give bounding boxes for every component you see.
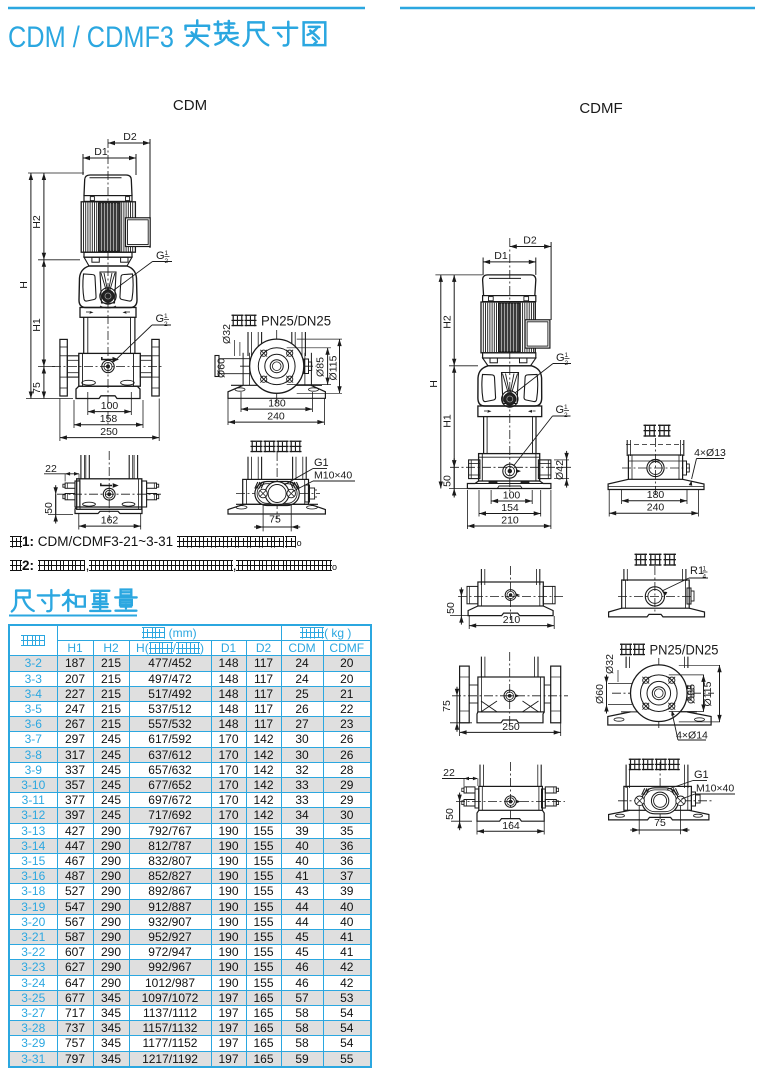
svg-text:4: 4 [703,574,707,581]
svg-text:2: 2 [564,412,568,419]
svg-text:210: 210 [501,515,519,527]
svg-text:Ø115: Ø115 [702,681,714,706]
svg-text:PN25/DN25: PN25/DN25 [650,642,719,658]
svg-text:CDMF: CDMF [579,100,622,117]
svg-text:H2: H2 [31,215,43,229]
svg-text:75: 75 [441,700,453,712]
svg-text:G: G [556,352,565,364]
svg-text:M10×40: M10×40 [696,783,734,795]
svg-text:22: 22 [443,767,455,779]
svg-text:50: 50 [445,602,457,614]
svg-text:250: 250 [502,721,520,733]
svg-text:Ø85: Ø85 [315,357,327,377]
svg-text:G: G [156,313,165,325]
svg-text:75: 75 [654,817,666,829]
svg-text:G1: G1 [694,769,709,781]
svg-text:PN25/DN25: PN25/DN25 [261,313,331,329]
svg-text:50: 50 [442,475,454,487]
svg-text:1: 1 [165,250,169,257]
svg-text:50: 50 [43,502,55,514]
svg-text:180: 180 [268,398,286,410]
svg-text:75: 75 [31,382,43,394]
svg-text:22: 22 [45,463,57,475]
svg-text:162: 162 [101,515,119,527]
svg-text:240: 240 [647,502,665,514]
svg-text:2: 2 [164,321,168,328]
svg-text:Ø32: Ø32 [221,324,233,344]
svg-text:Ø60: Ø60 [594,684,606,704]
svg-text:75: 75 [269,514,281,526]
svg-text:240: 240 [267,411,285,423]
svg-text:D2: D2 [523,235,537,247]
svg-text:4×Ø13: 4×Ø13 [694,447,726,459]
svg-text:250: 250 [100,426,118,438]
svg-text:CDM: CDM [173,97,207,114]
svg-text:H: H [18,281,30,289]
svg-text:1: 1 [564,404,568,411]
svg-text:100: 100 [101,400,119,412]
svg-text:1: 1 [565,352,569,359]
svg-text:CDM / CDMF3: CDM / CDMF3 [8,21,174,54]
svg-text:D1: D1 [94,146,108,158]
svg-text:158: 158 [100,413,118,425]
svg-text:M10×40: M10×40 [314,470,352,482]
svg-text:154: 154 [501,502,519,514]
svg-text:G1: G1 [314,457,329,469]
svg-text:Ø32: Ø32 [604,654,616,674]
svg-text:180: 180 [647,489,665,501]
svg-text:100: 100 [503,490,521,502]
svg-text:1: 1 [703,566,707,573]
svg-text:Ø42: Ø42 [554,460,566,480]
svg-text:Ø85: Ø85 [686,684,698,704]
svg-text:Ø60: Ø60 [216,358,228,378]
svg-text:D1: D1 [494,250,508,262]
svg-text:164: 164 [502,820,520,832]
svg-text:1: 1 [164,313,168,320]
svg-text:H1: H1 [442,414,454,428]
svg-text:H1: H1 [31,318,43,332]
svg-text:Ø115: Ø115 [328,355,340,380]
svg-text:G: G [156,250,165,262]
svg-text:210: 210 [503,614,521,626]
svg-text:D2: D2 [123,131,137,143]
svg-text:H2: H2 [442,315,454,329]
svg-text:H: H [428,380,440,388]
svg-text:G: G [556,404,565,416]
svg-text:50: 50 [444,808,456,820]
